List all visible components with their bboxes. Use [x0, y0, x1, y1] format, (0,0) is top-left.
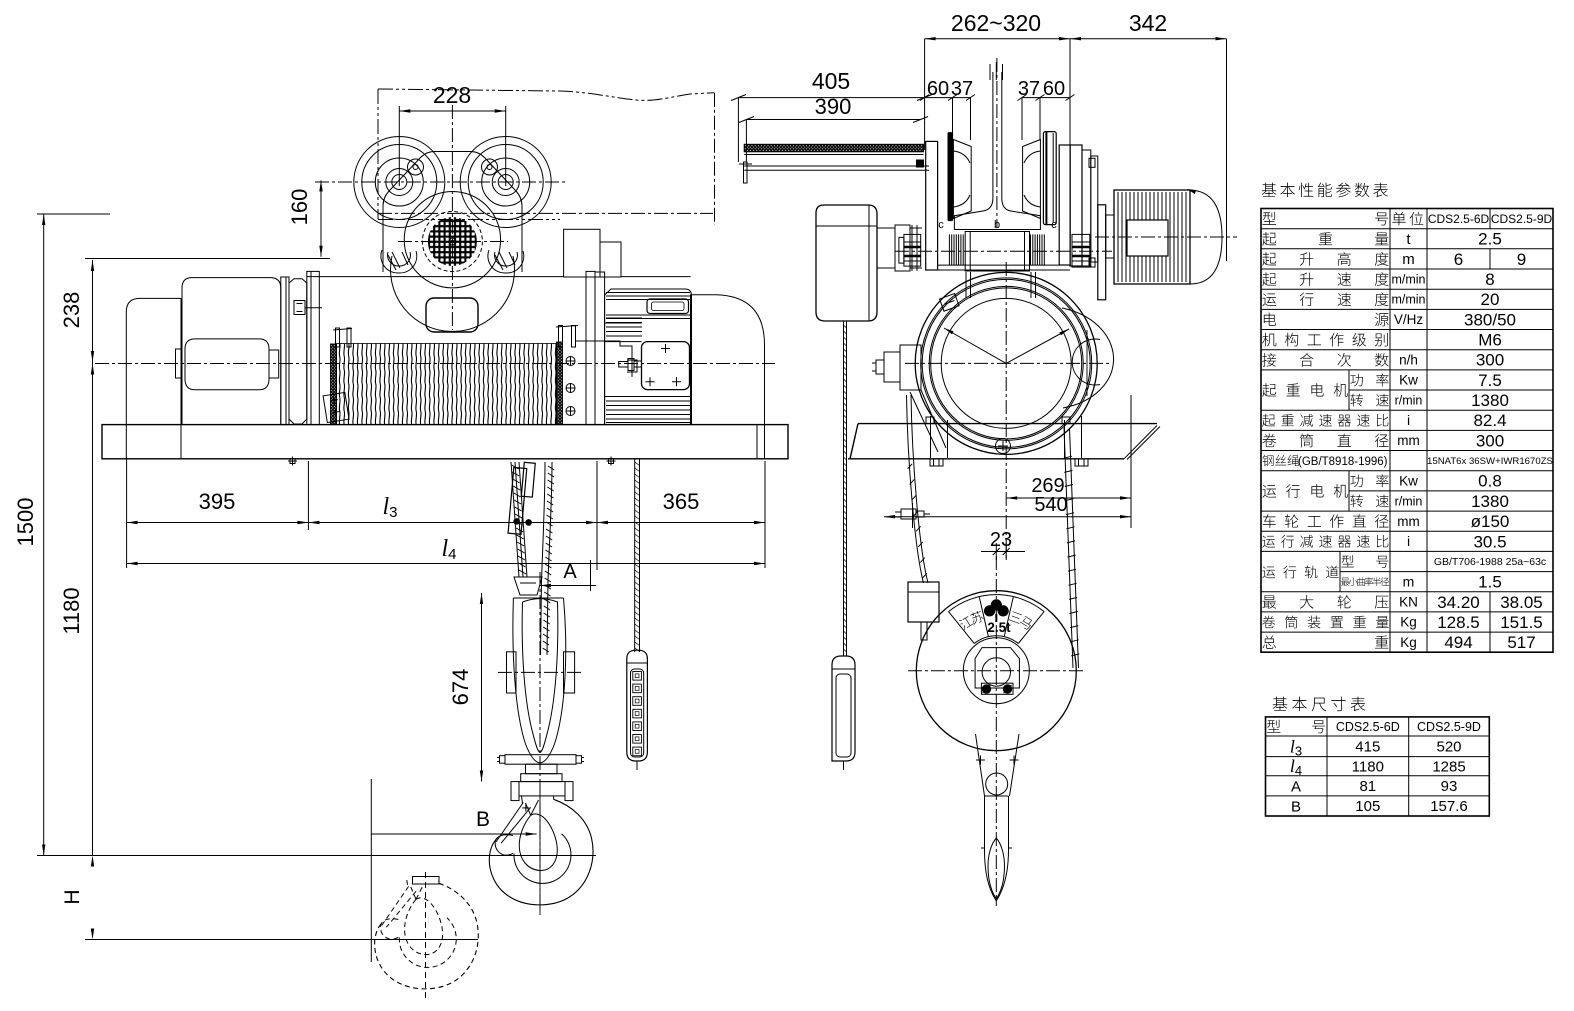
- svg-text:r/min: r/min: [1395, 394, 1423, 408]
- svg-text:m/min: m/min: [1391, 293, 1425, 307]
- svg-text:Kg: Kg: [1400, 615, 1417, 630]
- svg-text:m: m: [1403, 574, 1415, 590]
- svg-text:540: 540: [1034, 494, 1067, 516]
- svg-text:1285: 1285: [1432, 758, 1465, 775]
- svg-text:KN: KN: [1399, 595, 1418, 610]
- svg-text:81: 81: [1359, 778, 1376, 795]
- svg-text:160: 160: [287, 189, 312, 226]
- svg-text:1.5: 1.5: [1478, 573, 1502, 592]
- svg-text:15NAT6x 36SW+IWR1670ZS: 15NAT6x 36SW+IWR1670ZS: [1427, 456, 1553, 467]
- svg-text:B: B: [476, 808, 490, 831]
- svg-text:128.5: 128.5: [1437, 613, 1480, 632]
- svg-text:Kw: Kw: [1399, 474, 1418, 489]
- svg-text:i: i: [1407, 412, 1410, 428]
- svg-text:23: 23: [990, 529, 1012, 551]
- svg-text:60: 60: [927, 78, 949, 100]
- svg-text:n/h: n/h: [1399, 353, 1418, 368]
- svg-text:0.8: 0.8: [1478, 472, 1502, 491]
- svg-text:CDS2.5-6D: CDS2.5-6D: [1336, 720, 1400, 734]
- svg-text:405: 405: [812, 68, 850, 94]
- svg-text:8: 8: [1485, 270, 1494, 289]
- svg-text:i: i: [1407, 533, 1410, 549]
- svg-text:34.20: 34.20: [1437, 593, 1480, 612]
- svg-text:93: 93: [1441, 778, 1458, 795]
- svg-text:mm: mm: [1397, 514, 1420, 529]
- svg-text:82.4: 82.4: [1473, 411, 1506, 430]
- svg-text:262~320: 262~320: [951, 10, 1041, 36]
- svg-text:380/50: 380/50: [1464, 310, 1516, 329]
- svg-text:494: 494: [1444, 633, 1472, 652]
- svg-text:2.5: 2.5: [1478, 230, 1502, 249]
- svg-text:H: H: [61, 889, 84, 904]
- svg-text:415: 415: [1355, 739, 1380, 756]
- svg-text:m: m: [1402, 251, 1415, 268]
- svg-text:c: c: [938, 219, 944, 231]
- svg-text:7.5: 7.5: [1478, 371, 1502, 390]
- svg-text:520: 520: [1436, 739, 1461, 756]
- svg-text:30.5: 30.5: [1473, 532, 1506, 551]
- svg-text:CDS2.5-9D: CDS2.5-9D: [1417, 720, 1481, 734]
- svg-text:38.05: 38.05: [1500, 593, 1543, 612]
- svg-text:GB/T706-1988 25a~63c: GB/T706-1988 25a~63c: [1434, 556, 1546, 568]
- svg-text:517: 517: [1507, 633, 1535, 652]
- svg-text:ø150: ø150: [1471, 512, 1510, 531]
- svg-text:365: 365: [663, 489, 700, 514]
- svg-text:1380: 1380: [1471, 391, 1509, 410]
- svg-text:37: 37: [1018, 78, 1040, 100]
- svg-text:r/min: r/min: [1395, 494, 1423, 508]
- svg-text:238: 238: [59, 292, 84, 329]
- svg-text:Kw: Kw: [1399, 373, 1418, 388]
- svg-text:674: 674: [448, 669, 473, 706]
- svg-text:A: A: [1291, 778, 1301, 795]
- svg-text:M6: M6: [1478, 331, 1502, 350]
- svg-text:20: 20: [1481, 290, 1500, 309]
- svg-text:V/Hz: V/Hz: [1394, 312, 1424, 327]
- svg-text:1180: 1180: [1352, 758, 1384, 775]
- svg-text:300: 300: [1476, 431, 1504, 450]
- svg-text:157.6: 157.6: [1430, 798, 1468, 815]
- svg-text:390: 390: [815, 94, 852, 119]
- svg-text:228: 228: [433, 82, 471, 108]
- svg-text:342: 342: [1129, 10, 1167, 36]
- svg-text:m/min: m/min: [1391, 273, 1425, 287]
- svg-text:60: 60: [1043, 78, 1065, 100]
- svg-text:(GB/T8918-1996): (GB/T8918-1996): [1298, 456, 1388, 468]
- svg-text:105: 105: [1355, 798, 1380, 815]
- svg-text:1180: 1180: [59, 587, 84, 634]
- svg-text:2.5t: 2.5t: [987, 620, 1011, 635]
- svg-text:6: 6: [1454, 250, 1463, 269]
- svg-text:151.5: 151.5: [1500, 613, 1543, 632]
- svg-text:1500: 1500: [13, 498, 38, 547]
- svg-text:B: B: [1291, 799, 1301, 816]
- svg-text:9: 9: [1517, 250, 1526, 269]
- svg-text:A: A: [563, 561, 577, 583]
- svg-text:CDS2.5-6D: CDS2.5-6D: [1428, 212, 1490, 226]
- svg-text:300: 300: [1476, 351, 1504, 370]
- svg-text:Kg: Kg: [1400, 635, 1417, 650]
- svg-text:395: 395: [199, 489, 236, 514]
- svg-text:1380: 1380: [1471, 492, 1509, 511]
- svg-text:CDS2.5-9D: CDS2.5-9D: [1491, 212, 1553, 226]
- svg-text:mm: mm: [1397, 433, 1420, 448]
- svg-text:b: b: [994, 219, 1000, 231]
